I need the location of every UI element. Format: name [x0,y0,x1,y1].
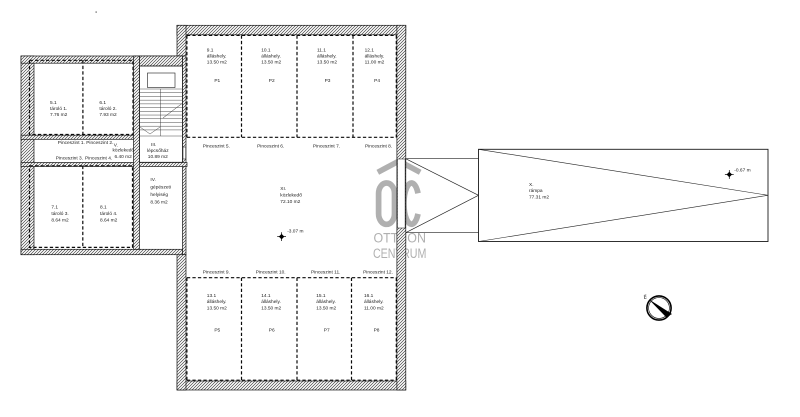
svg-text:8.64 m2: 8.64 m2 [51,218,69,224]
svg-text:13.50 m2: 13.50 m2 [261,59,281,65]
svg-text:7.93 m2: 7.93 m2 [99,112,117,118]
svg-text:közlekedő: közlekedő [280,193,302,199]
svg-text:Pinceszint 6.: Pinceszint 6. [257,144,284,150]
svg-text:P2: P2 [269,78,275,84]
svg-text:Pinceszint 1.: Pinceszint 1. [58,140,85,146]
svg-text:13.1: 13.1 [207,293,217,299]
svg-text:11.1: 11.1 [317,47,326,53]
svg-text:P6: P6 [269,328,275,334]
svg-text:álláshely.: álláshely. [364,299,384,305]
svg-text:P4: P4 [374,78,380,84]
svg-text:P3: P3 [325,78,331,84]
svg-text:-0.67 m: -0.67 m [734,168,750,174]
svg-text:10.89 m2: 10.89 m2 [148,154,168,160]
svg-text:P5: P5 [214,328,220,334]
svg-text:álláshely.: álláshely. [317,54,337,60]
svg-text:álláshely.: álláshely. [207,54,227,60]
svg-text:X.: X. [529,182,534,188]
svg-text:10.1: 10.1 [261,47,271,53]
svg-text:álláshely.: álláshely. [207,299,227,305]
svg-text:7.76 m2: 7.76 m2 [50,112,68,118]
svg-text:V.: V. [114,143,118,149]
svg-text:Pinceszint 5.: Pinceszint 5. [203,144,230,150]
svg-text:6.1: 6.1 [99,100,106,106]
svg-text:rámpa: rámpa [529,188,543,194]
svg-text:13.50 m2: 13.50 m2 [316,305,336,311]
svg-text:IV.: IV. [150,177,155,183]
svg-text:álláshely.: álláshely. [261,54,281,60]
svg-text:III.: III. [151,142,156,148]
svg-text:Pinceszint 3.: Pinceszint 3. [56,156,83,162]
svg-text:Pinceszint 12.: Pinceszint 12. [363,269,393,275]
svg-text:16.1: 16.1 [364,293,374,299]
svg-text:P1: P1 [214,78,220,84]
svg-text:5.1: 5.1 [50,100,57,106]
svg-text:P8: P8 [374,328,380,334]
svg-text:Pinceszint 7.: Pinceszint 7. [313,144,340,150]
svg-text:közlekedő: közlekedő [113,148,135,154]
svg-text:Pinceszint 10.: Pinceszint 10. [256,269,286,275]
svg-text:15.1: 15.1 [316,293,326,299]
svg-text:9.1: 9.1 [207,47,214,53]
svg-text:álláshely.: álláshely. [365,54,385,60]
svg-text:77.31 m2: 77.31 m2 [529,195,549,201]
svg-text:-3.07 m: -3.07 m [287,228,303,234]
svg-text:6.40 m2: 6.40 m2 [115,154,133,160]
svg-text:13.50 m2: 13.50 m2 [317,59,337,65]
svg-text:8.36 m2: 8.36 m2 [150,199,168,205]
svg-text:álláshely.: álláshely. [316,299,336,305]
svg-text:tároló 2.: tároló 2. [99,106,116,112]
svg-text:8.64 m2: 8.64 m2 [100,218,118,224]
svg-text:tároló 3.: tároló 3. [51,211,68,217]
svg-text:Pinceszint 2.: Pinceszint 2. [86,140,113,146]
svg-text:XI.: XI. [280,186,286,192]
svg-text:8.1: 8.1 [100,205,107,211]
svg-text:tároló 1.: tároló 1. [50,106,67,112]
svg-text:11.00 m2: 11.00 m2 [364,305,384,311]
svg-text:Pinceszint 4.: Pinceszint 4. [85,156,112,162]
svg-text:14.1: 14.1 [261,293,271,299]
svg-text:gépészeti: gépészeti [150,185,171,191]
svg-text:Pinceszint 11.: Pinceszint 11. [311,269,341,275]
svg-text:13.50 m2: 13.50 m2 [207,59,227,65]
svg-text:álláshely.: álláshely. [261,299,281,305]
svg-text:72.10 m2: 72.10 m2 [280,199,300,205]
svg-text:P7: P7 [324,328,330,334]
svg-text:13.50 m2: 13.50 m2 [261,305,281,311]
svg-text:12.1: 12.1 [365,47,375,53]
svg-text:Pinceszint 8.: Pinceszint 8. [365,144,392,150]
svg-text:13.50 m2: 13.50 m2 [207,305,227,311]
svg-text:7.1: 7.1 [51,205,58,211]
svg-text:Pinceszint 9.: Pinceszint 9. [203,269,230,275]
svg-text:lépcsőház: lépcsőház [147,148,169,154]
svg-text:helyiség: helyiség [150,192,168,198]
svg-text:tároló 4.: tároló 4. [100,211,117,217]
svg-text:11.00 m2: 11.00 m2 [365,59,385,65]
